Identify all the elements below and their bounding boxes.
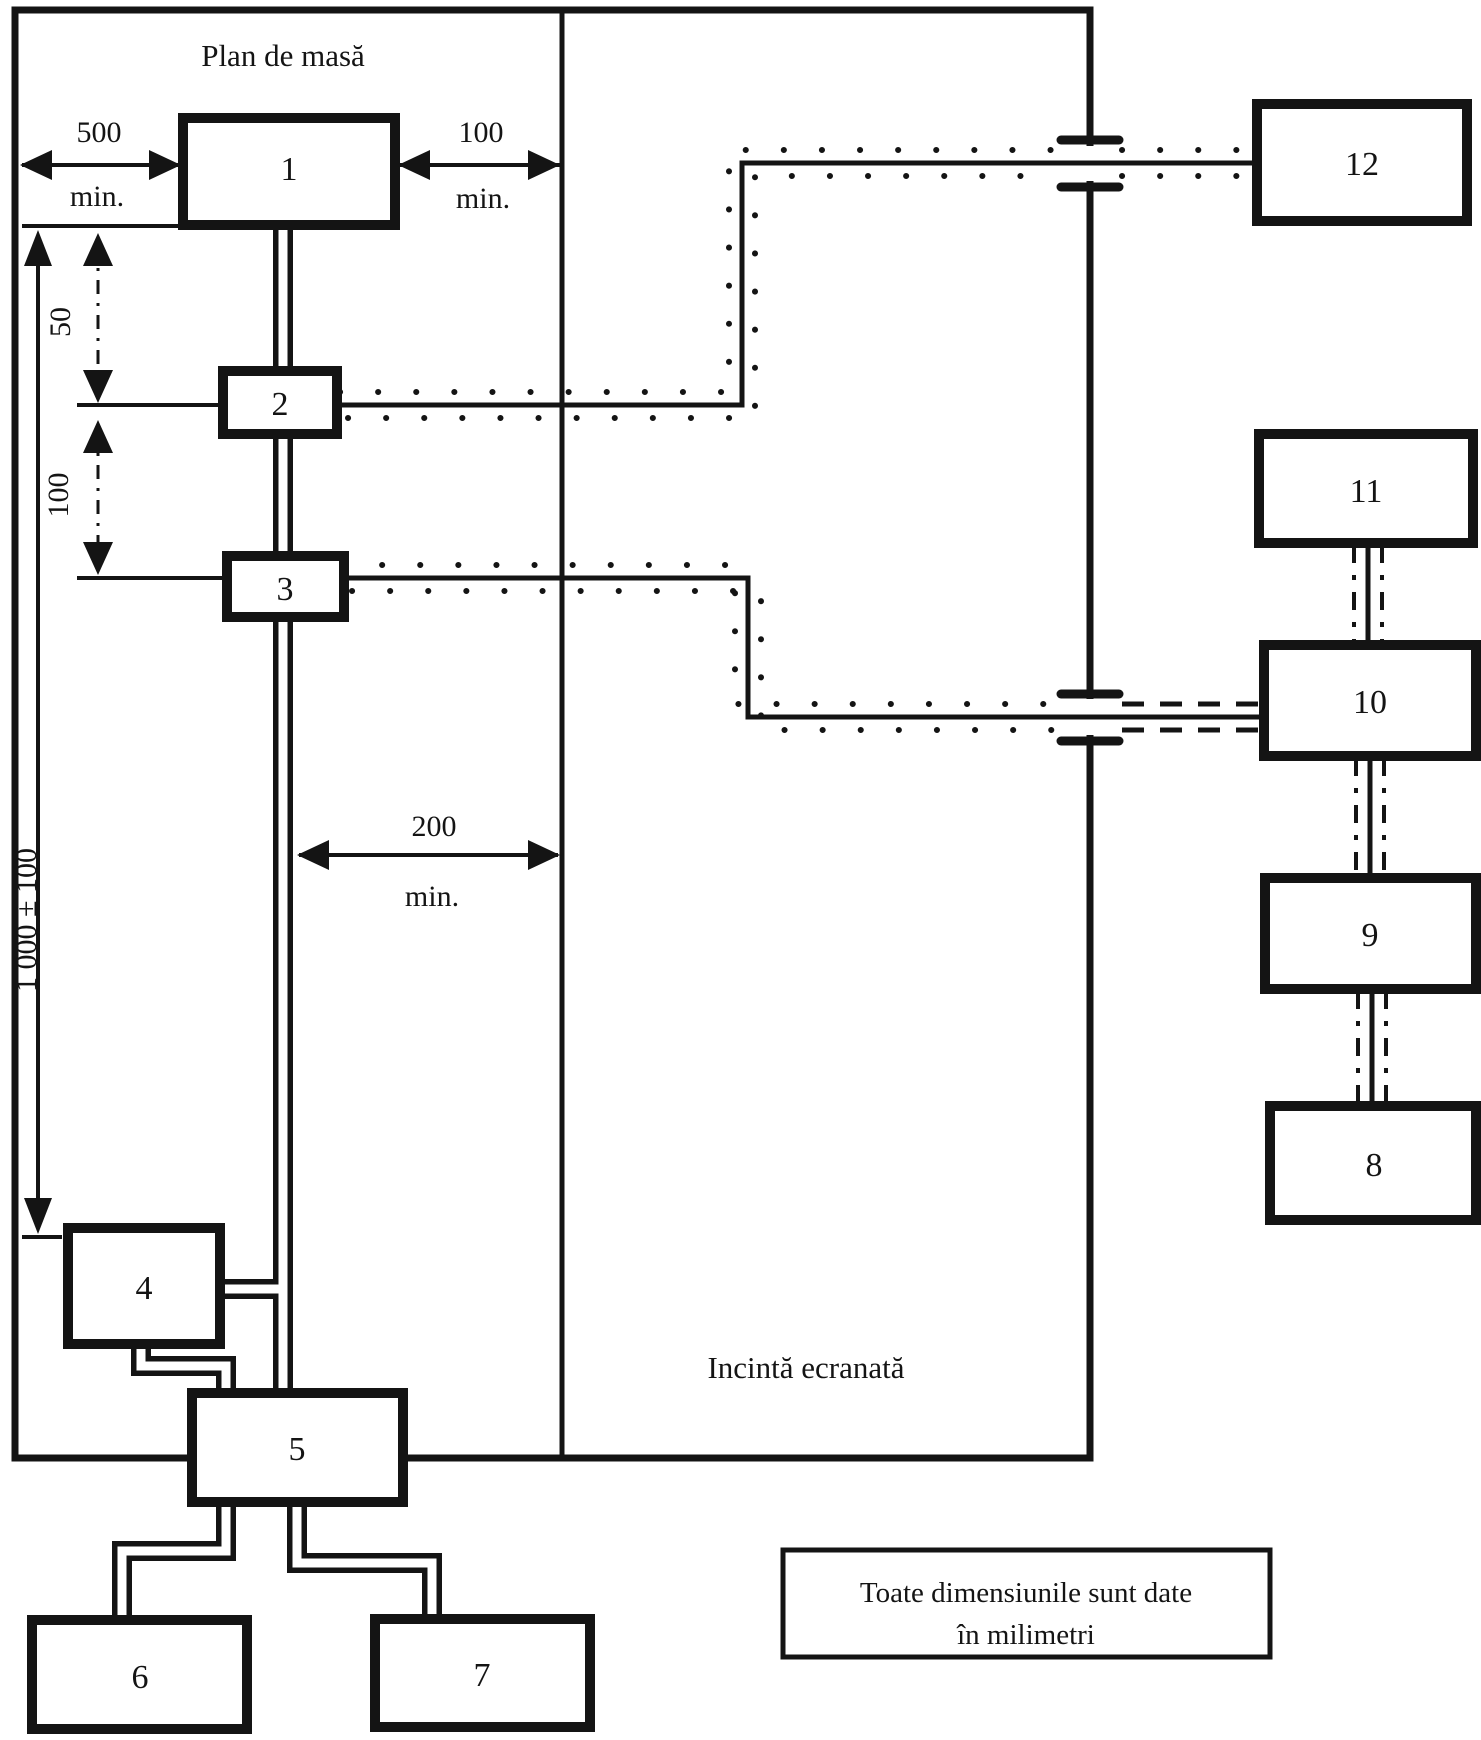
box5-box7-core (297, 1502, 432, 1619)
device-box-4: 4 (68, 1228, 220, 1344)
dim-200-arrow-right (528, 840, 560, 870)
device-box-6: 6 (32, 1620, 247, 1729)
box8-label: 8 (1366, 1147, 1383, 1184)
dim-100r-min: min. (456, 182, 510, 215)
dim-100v-arrow-down (83, 542, 113, 575)
dim-200-arrow-left (297, 840, 329, 870)
dim-500-value: 500 (77, 116, 122, 149)
note-line1: Toate dimensiunile sunt date (860, 1577, 1192, 1609)
dim-100r-arrow-right (528, 150, 560, 180)
device-box-11: 11 (1259, 434, 1473, 543)
dim-1000-arrow-up (24, 230, 52, 266)
scanned-diagram-page: 1 2 3 4 5 6 7 8 9 10 11 12 (0, 0, 1481, 1735)
box4-label: 4 (136, 1270, 153, 1307)
box5-label: 5 (289, 1431, 306, 1468)
dim-100v-arrow-up (83, 420, 113, 453)
harness2-dots-lower (348, 176, 1055, 418)
dim-500-min: min. (70, 180, 124, 213)
dim-500-arrow-right (149, 150, 181, 180)
dim-50-arrow-down (83, 370, 113, 403)
box5-to-box6-link (122, 1502, 226, 1620)
box7-label: 7 (474, 1657, 491, 1694)
device-box-5: 5 (192, 1393, 403, 1502)
device-box-12: 12 (1257, 104, 1467, 221)
harness2-dots-upper (340, 150, 1055, 392)
dim-100r-value: 100 (459, 116, 504, 149)
harness3-to-box10 (344, 578, 1262, 717)
dim-100r-arrow-left (398, 150, 430, 180)
device-box-2: 2 (223, 371, 337, 434)
harness3-dots-upper (344, 565, 1055, 704)
dim-500-arrow-left (20, 150, 52, 180)
box12-label: 12 (1345, 146, 1379, 183)
dim-50-value: 50 (44, 307, 77, 337)
box9-label: 9 (1362, 917, 1379, 954)
device-box-1: 1 (183, 118, 395, 225)
units-note-box: Toate dimensiunile sunt date în milimetr… (783, 1550, 1270, 1657)
box11-label: 11 (1350, 473, 1383, 510)
harness3-dots-lower (352, 591, 1055, 730)
box6-label: 6 (132, 1659, 149, 1696)
test-setup-diagram: 1 2 3 4 5 6 7 8 9 10 11 12 (0, 0, 1481, 1735)
box1-label: 1 (281, 151, 298, 188)
dim-200-value: 200 (412, 810, 457, 843)
dim-200-min: min. (405, 880, 459, 913)
dim-1000-arrow-down (24, 1198, 52, 1234)
shielded-enclosure-label: Incintă ecranată (707, 1350, 904, 1385)
box4-box5-core (141, 1344, 226, 1393)
device-box-8: 8 (1270, 1106, 1476, 1220)
dim-1000-value: 1 000 ± 100 (10, 848, 43, 992)
device-box-9: 9 (1265, 878, 1476, 989)
box2-label: 2 (272, 386, 289, 423)
dim-100v-value: 100 (42, 473, 75, 518)
box10-label: 10 (1353, 684, 1387, 721)
device-box-10: 10 (1264, 645, 1476, 756)
dim-50-arrow-up (83, 233, 113, 266)
note-line2: în milimetri (956, 1619, 1095, 1651)
device-box-7: 7 (375, 1619, 590, 1727)
ground-plane-title: Plan de masă (201, 38, 365, 73)
device-box-3: 3 (227, 556, 344, 617)
box3-label: 3 (277, 571, 294, 608)
